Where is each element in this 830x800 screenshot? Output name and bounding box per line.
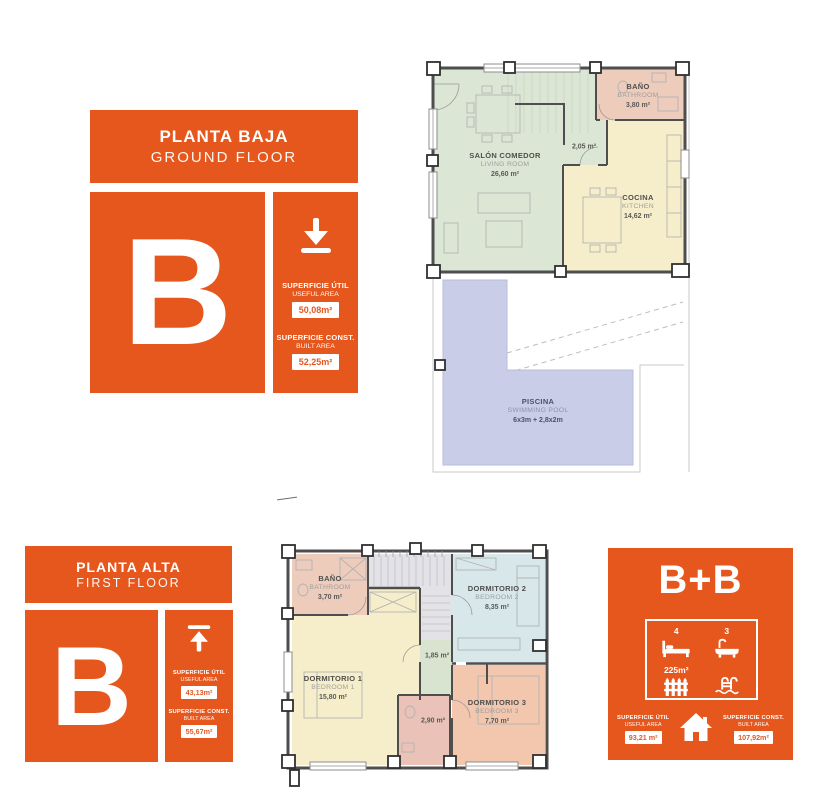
first-floor-stats-panel: SUPERFICIE ÚTIL USEFUL AREA 43,13m² SUPE… [165, 610, 233, 762]
summary-built-value: 107,92m² [734, 731, 773, 744]
room-label-hallway: 1,85 m² [425, 651, 449, 660]
floorplan-brochure-page: PLANTA BAJA GROUND FLOOR B SUPERFICIE ÚT… [0, 0, 830, 800]
ground-floor-unit-letter: B [90, 192, 265, 393]
house-icon [678, 711, 714, 748]
room-label-bathroom: BAÑO BATHROOM 3,70 m² [309, 574, 350, 602]
useful-area-label-en: USEFUL AREA [292, 291, 339, 298]
summary-areas-row: SUPERFICIE ÚTIL USEFUL AREA 93,21 m² SUP… [617, 711, 784, 748]
built-area-label-es: SUPERFICIE CONST. [168, 709, 229, 715]
room-label-pool: PISCINA SWIMMING POOL 6x3m + 2,8x2m [508, 397, 569, 425]
room-label-hallway: 2,05 m² [572, 142, 596, 151]
first-floor-header: PLANTA ALTA FIRST FLOOR [25, 546, 232, 603]
first-floor-unit-letter: B [25, 610, 158, 762]
bedrooms-count: 4 [674, 626, 679, 636]
built-area-label-en: BUILT AREA [184, 716, 215, 722]
pool-feature [702, 663, 753, 701]
built-area-label-en: BUILT AREA [296, 343, 335, 350]
room-label-bathroom: BAÑO BATHROOM 3,80 m² [617, 82, 658, 110]
built-area-value: 52,25m² [292, 354, 340, 370]
drawing-tick-mark [277, 496, 297, 501]
useful-area-value: 43,13m² [181, 686, 218, 699]
useful-area-label-es: SUPERFICIE ÚTIL [173, 670, 225, 676]
useful-area-label-en: USEFUL AREA [181, 677, 218, 683]
ground-floor-header: PLANTA BAJA GROUND FLOOR [90, 110, 358, 183]
useful-area-value: 50,08m² [292, 302, 340, 318]
first-floor-plan: BAÑO BATHROOM 3,70 m² DORMITORIO 2 BEDRO… [270, 540, 570, 795]
pool-ladder-icon [713, 675, 741, 701]
summary-built-area: SUPERFICIE CONST. BUILT AREA 107,92m² [723, 715, 784, 744]
first-floor-title-es: PLANTA ALTA [76, 559, 181, 575]
room-label-bedroom2: DORMITORIO 2 BEDROOM 2 8,35 m² [468, 584, 526, 612]
room-label-kitchen: COCINA KITCHEN 14,62 m² [622, 193, 654, 221]
room-label-living: SALÓN COMEDOR LIVING ROOM 26,60 m² [469, 151, 540, 179]
unit-features-box: 4 3 [645, 619, 758, 700]
room-label-bedroom3: DORMITORIO 3 BEDROOM 3 7,70 m² [468, 698, 526, 726]
unit-summary-panel: B+B 4 3 [608, 548, 793, 760]
ground-floor-title-en: GROUND FLOOR [151, 149, 298, 166]
summary-useful-area: SUPERFICIE ÚTIL USEFUL AREA 93,21 m² [617, 715, 669, 744]
summary-useful-value: 93,21 m² [625, 731, 662, 744]
bathtub-icon [713, 638, 741, 663]
plot-feature: 225m² [651, 663, 702, 701]
bathrooms-count: 3 [724, 626, 729, 636]
bedrooms-feature: 4 [651, 626, 702, 663]
first-floor-title-en: FIRST FLOOR [76, 576, 180, 590]
unit-summary-title: B+B [608, 558, 793, 603]
ground-floor-plan: SALÓN COMEDOR LIVING ROOM 26,60 m² BAÑO … [420, 55, 715, 485]
bathrooms-feature: 3 [702, 626, 753, 663]
plot-area-value: 225m² [664, 665, 689, 675]
arrow-up-icon [183, 623, 215, 658]
room-label-bathroom2: 2,90 m² [421, 716, 445, 725]
arrow-down-icon [295, 216, 337, 261]
ground-floor-stats-panel: SUPERFICIE ÚTIL USEFUL AREA 50,08m² SUPE… [273, 192, 358, 393]
ground-floor-title-es: PLANTA BAJA [159, 127, 288, 147]
fence-icon [663, 677, 689, 701]
bed-icon [661, 638, 691, 663]
room-label-bedroom1: DORMITORIO 1 BEDROOM 1 15,80 m² [304, 674, 362, 702]
useful-area-label-es: SUPERFICIE ÚTIL [282, 281, 349, 290]
built-area-label-es: SUPERFICIE CONST. [277, 333, 355, 342]
built-area-value: 55,67m² [181, 725, 218, 738]
